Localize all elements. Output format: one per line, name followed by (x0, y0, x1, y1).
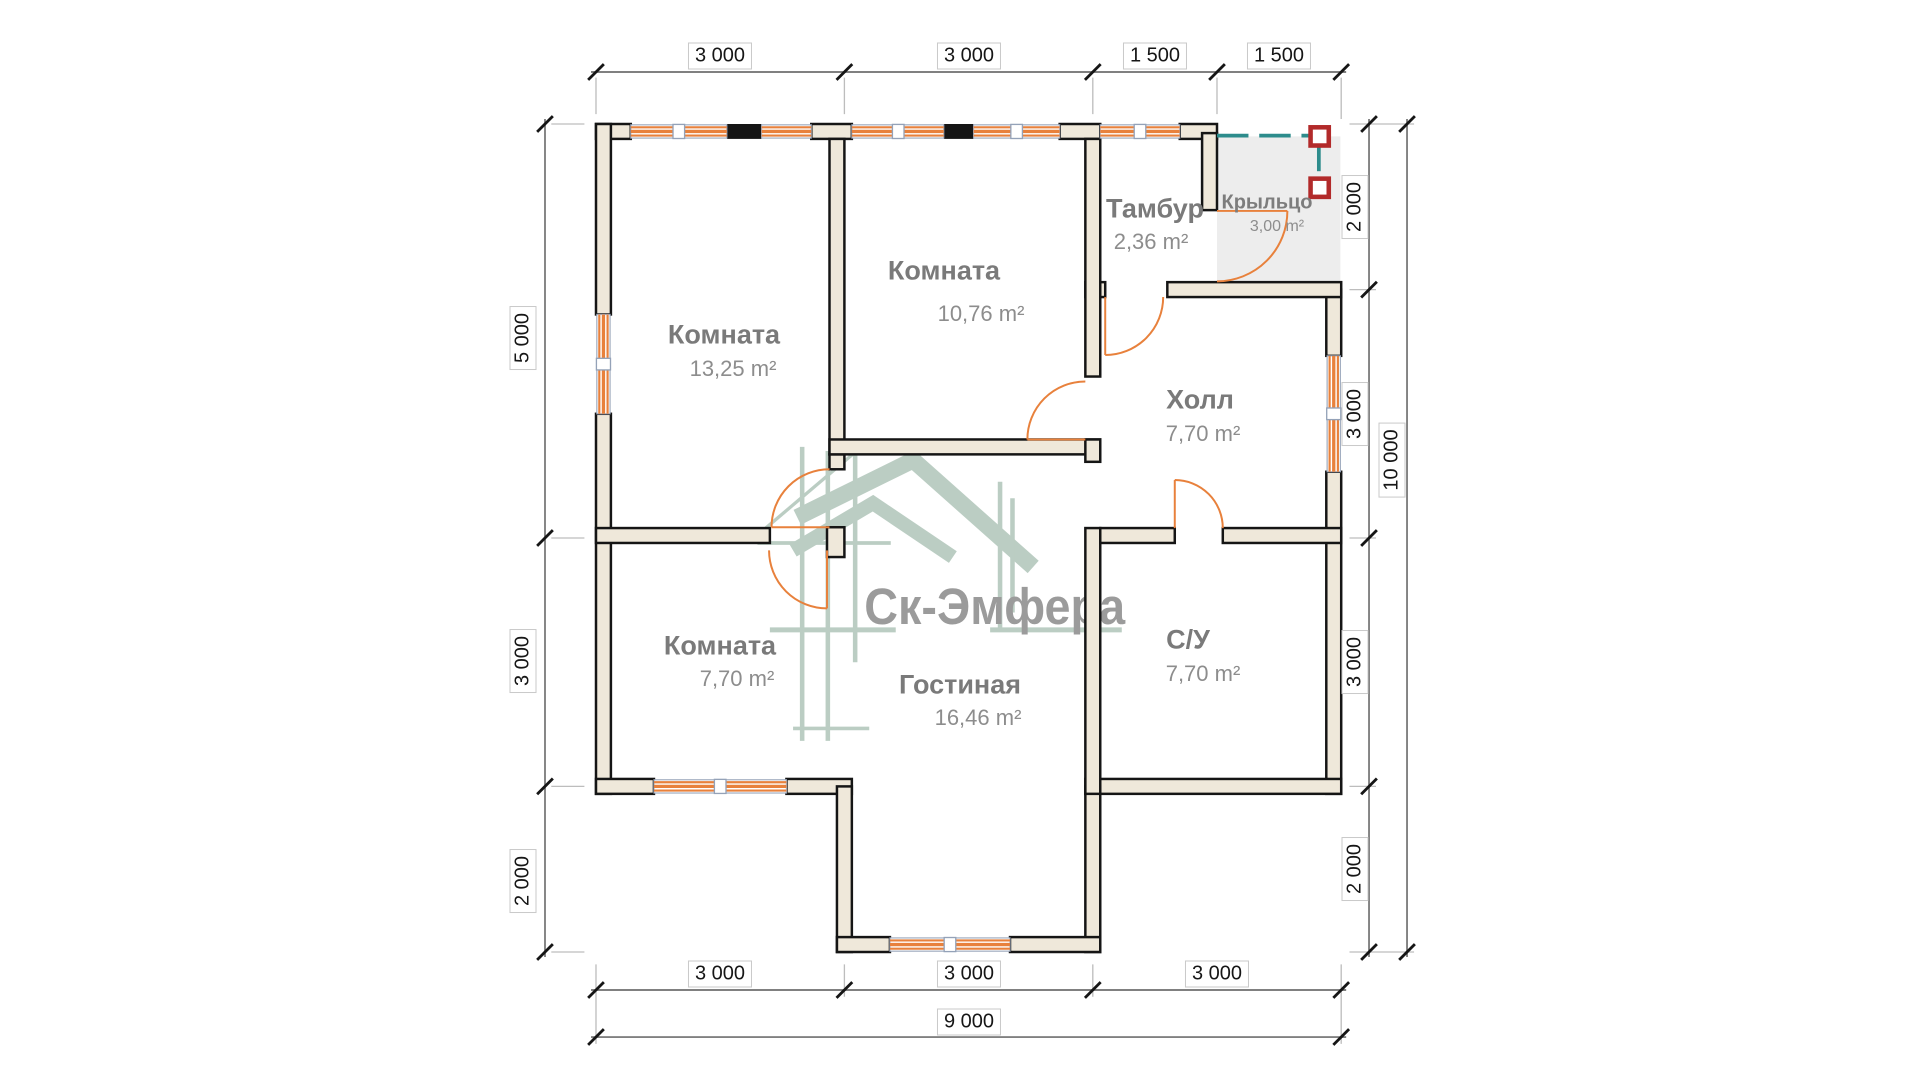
room-area-porch: 3,00 m² (1250, 218, 1304, 236)
room-area-living: 16,46 m² (935, 705, 1022, 731)
room-area-bedroom3: 7,70 m² (700, 666, 775, 692)
dim-top-3: 1 500 (1123, 43, 1187, 70)
dim-bottom-2: 3 000 (937, 961, 1001, 988)
dim-bottom-total: 9 000 (937, 1009, 1001, 1036)
room-area-bedroom1: 13,25 m² (690, 356, 777, 382)
dim-left-2: 3 000 (510, 629, 537, 693)
dim-bottom-3: 3 000 (1185, 961, 1249, 988)
dim-right-4: 2 000 (1342, 837, 1369, 901)
room-area-tambour: 2,36 m² (1114, 229, 1189, 255)
dim-right-total: 10 000 (1379, 422, 1406, 497)
room-area-bathroom: 7,70 m² (1166, 661, 1241, 687)
dim-bottom-1: 3 000 (688, 961, 752, 988)
railing-post (1311, 127, 1329, 145)
dim-top-1: 3 000 (688, 43, 752, 70)
room-label-porch: Крыльцо (1221, 192, 1312, 215)
dim-top-4: 1 500 (1247, 43, 1311, 70)
room-label-tambour: Тамбур (1106, 194, 1204, 225)
railing-post (1311, 179, 1329, 197)
room-label-bedroom3: Комната (664, 631, 776, 662)
room-area-hall: 7,70 m² (1166, 421, 1241, 447)
dim-left-3: 2 000 (510, 849, 537, 913)
room-label-bathroom: С/У (1166, 625, 1210, 656)
dim-right-1: 2 000 (1342, 175, 1369, 239)
dim-right-3: 3 000 (1342, 630, 1369, 694)
room-area-bedroom2: 10,76 m² (938, 301, 1025, 327)
room-label-bedroom2: Комната (888, 256, 1000, 287)
floor-plan-page: Ск-Эмфера (0, 0, 1920, 1080)
dim-right-2: 3 000 (1342, 382, 1369, 446)
room-label-hall: Холл (1166, 385, 1234, 416)
dim-top-2: 3 000 (937, 43, 1001, 70)
floor-plan-drawing: Ск-Эмфера (0, 0, 1920, 1080)
room-label-living: Гостиная (899, 670, 1021, 701)
dim-left-1: 5 000 (510, 306, 537, 370)
room-label-bedroom1: Комната (668, 320, 780, 351)
